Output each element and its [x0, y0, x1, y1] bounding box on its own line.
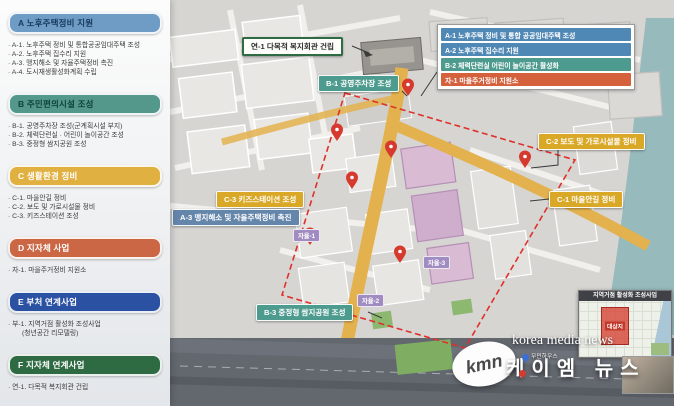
callout-b1-parking: B-1 공영주차장 조성 [318, 75, 399, 92]
inset-title: 지역거점 활성화 조성사업 [579, 291, 671, 301]
zone-badge-3: 자율-3 [423, 256, 450, 269]
section-a: A 노후주택정비 지원 A-1. 노후주택 정비 및 통합공공임대주택 조성 A… [8, 12, 162, 77]
list-item: A-4. 도시재생활성화계획 수립 [8, 68, 162, 77]
project-list-sidebar: A 노후주택정비 지원 A-1. 노후주택 정비 및 통합공공임대주택 조성 A… [0, 0, 170, 406]
list-item: 연-1. 다목적 복지회관 건립 [8, 383, 162, 392]
legend-row-a1: A-1 노후주택 정비 및 통합 공공임대주택 조성 [441, 28, 631, 41]
callout-c3-kids-station: C-3 키즈스테이션 조성 [216, 191, 304, 208]
list-item: C-3. 키즈스테이션 조성 [8, 212, 162, 221]
callout-a3-housing: A-3 맹지해소 및 자율주택정비 촉진 [172, 209, 300, 226]
list-item: A-1. 노후주택 정비 및 통합공공임대주택 조성 [8, 41, 162, 50]
callout-c1-village-road: C-1 마을안길 정비 [549, 191, 623, 208]
legend-row-ja1: 자-1 마을주거정비 지원소 [441, 73, 631, 86]
section-c-title: C 생활환경 정비 [8, 165, 162, 187]
logo-english-text: korea media news [512, 333, 613, 349]
section-d-title: D 지자체 사업 [8, 237, 162, 259]
section-a-title: A 노후주택정비 지원 [8, 12, 162, 34]
list-item: 부-1. 지역거점 활성화 조성사업 [8, 320, 162, 329]
section-d: D 지자체 사업 자-1. 마을주거정비 지원소 [8, 237, 162, 275]
zone-badge-2: 자율-2 [357, 294, 384, 307]
section-b: B 주민편의시설 조성 B-1. 공영주차장 조성(군계획시설 부지) B-2.… [8, 93, 162, 149]
list-item: C-2. 보도 및 가로시설물 정비 [8, 203, 162, 212]
list-item: B-1. 공영주차장 조성(군계획시설 부지) [8, 122, 162, 131]
zone-badge-1: 자율-1 [293, 229, 320, 242]
kmn-logo-text: kmn [464, 350, 505, 378]
blue-pin-icon [522, 354, 529, 364]
callout-welfare-center: 연-1 다목적 복지회관 건립 [242, 37, 343, 56]
section-e-title: E 부처 연계사업 [8, 291, 162, 313]
section-e: E 부처 연계사업 부-1. 지역거점 활성화 조성사업 (청년공간 리모델링) [8, 291, 162, 338]
welfare-center-building [361, 37, 424, 74]
section-f: F 지자체 연계사업 연-1. 다목적 복지회관 건립 [8, 354, 162, 392]
legend-row-a2: A-2 노후주택 집수리 지원 [441, 43, 631, 56]
list-item: A-2. 노후주택 집수리 지원 [8, 50, 162, 59]
list-item: (청년공간 리모델링) [8, 329, 162, 338]
inset-park [651, 343, 669, 355]
list-item: A-3. 맹지해소 및 자율주택정비 촉진 [8, 59, 162, 68]
callout-c2-sidewalk: C-2 보도 및 가로시설물 정비 [538, 133, 645, 150]
callout-b3-pocket-park: B-3 중정형 쌈지공원 조성 [256, 304, 353, 321]
list-item: 자-1. 마을주거정비 지원소 [8, 266, 162, 275]
section-f-title: F 지자체 연계사업 [8, 354, 162, 376]
red-pin-icon [519, 370, 526, 380]
list-item: B-2. 체력단련실 · 어린이 놀이공간 조성 [8, 131, 162, 140]
list-item: B-3. 중정형 쌈지공원 조성 [8, 140, 162, 149]
section-c: C 생활환경 정비 C-1. 마을안길 정비 C-2. 보도 및 가로시설물 정… [8, 165, 162, 221]
list-item: C-1. 마을안길 정비 [8, 194, 162, 203]
map-legend-box: A-1 노후주택 정비 및 통합 공공임대주택 조성 A-2 노후주택 집수리 … [437, 24, 635, 90]
map-pin-label: 무민하우스 [531, 351, 558, 360]
inset-target-area-label: 대상지 [605, 322, 625, 331]
infographic-canvas: A 노후주택정비 지원 A-1. 노후주택 정비 및 통합공공임대주택 조성 A… [0, 0, 674, 406]
section-b-title: B 주민편의시설 조성 [8, 93, 162, 115]
legend-row-b2: B-2 체력단련실 어린이 놀이공간 활성화 [441, 58, 631, 71]
